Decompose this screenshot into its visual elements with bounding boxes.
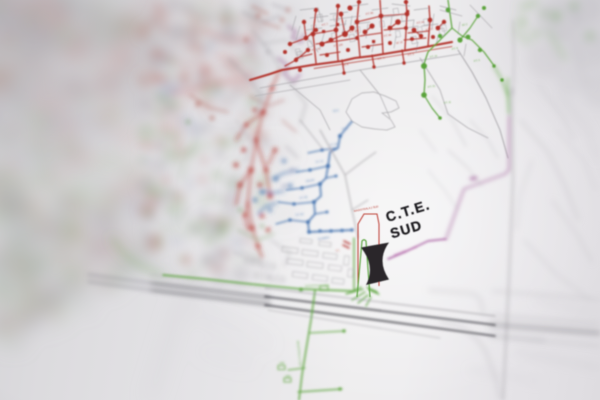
svg-text:MAGISTRALA 2 SUD: MAGISTRALA 2 SUD [305,284,329,288]
svg-text:1496: 1496 [285,375,291,378]
svg-text:P.T. 64: P.T. 64 [417,20,425,24]
svg-text:P.T. 28: P.T. 28 [330,143,338,147]
svg-text:P.T. 9: P.T. 9 [452,47,459,51]
svg-text:1498: 1498 [279,362,285,365]
svg-text:P.T. 31: P.T. 31 [316,160,324,164]
svg-text:P.T. 3: P.T. 3 [408,53,415,57]
svg-text:SC 2: SC 2 [462,23,469,27]
svg-text:P.T. 57: P.T. 57 [426,27,434,31]
svg-text:P.T. 5: P.T. 5 [474,59,481,63]
svg-text:P.T. 77: P.T. 77 [378,56,386,60]
svg-text:P.T. 11: P.T. 11 [444,101,452,105]
svg-text:CILINDRU: CILINDRU [318,236,330,241]
svg-text:MAGISTRALA 2 SUD: MAGISTRALA 2 SUD [296,341,303,367]
svg-text:MAGISTRALA 1 SUD: MAGISTRALA 1 SUD [393,245,418,257]
svg-text:CALAN: CALAN [306,179,315,183]
svg-text:P.T. 21: P.T. 21 [428,84,436,88]
svg-text:MAGISTRALA 2 SUD: MAGISTRALA 2 SUD [353,204,378,213]
svg-text:P.T. 40: P.T. 40 [300,196,308,200]
svg-text:P.T. 44: P.T. 44 [296,213,304,217]
svg-text:P.T. 120: P.T. 120 [334,43,344,48]
svg-text:P.T. 88: P.T. 88 [384,33,392,37]
svg-text:P.T.: P.T. [336,249,341,253]
svg-text:P.T. 2: P.T. 2 [342,127,349,131]
svg-text:SC 12: SC 12 [396,41,404,45]
svg-text:P.T. 131: P.T. 131 [312,47,322,52]
svg-text:SC 8: SC 8 [333,109,340,113]
svg-text:P.T. 93: P.T. 93 [366,11,374,15]
svg-text:P.T. 7: P.T. 7 [322,23,329,27]
